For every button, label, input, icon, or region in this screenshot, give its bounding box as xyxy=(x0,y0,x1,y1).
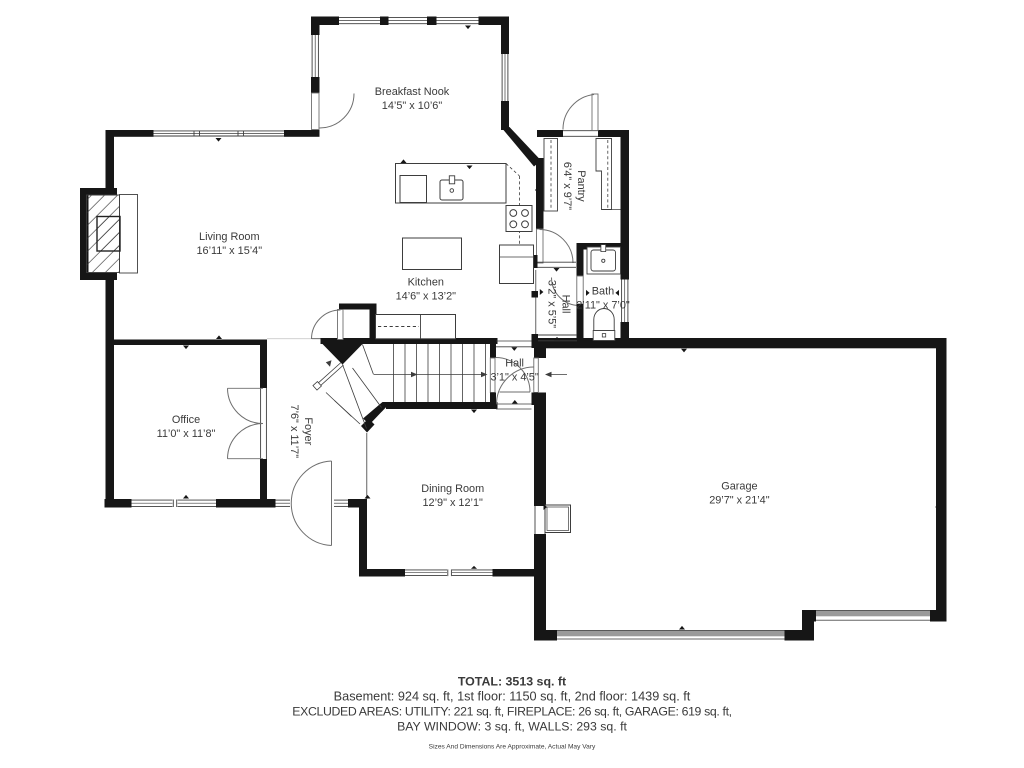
svg-text:11’0" x 11’8": 11’0" x 11’8" xyxy=(157,428,216,440)
svg-text:14’5" x 10’6": 14’5" x 10’6" xyxy=(382,100,443,112)
svg-text:Hall: Hall xyxy=(560,295,572,314)
svg-text:Living Room: Living Room xyxy=(199,231,260,243)
svg-text:Office: Office xyxy=(172,414,200,426)
svg-text:Sizes And Dimensions Are Appro: Sizes And Dimensions Are Approximate, Ac… xyxy=(429,744,596,751)
svg-text:6’4" x 9’7": 6’4" x 9’7" xyxy=(561,162,573,210)
svg-text:Basement: 924 sq. ft, 1st floo: Basement: 924 sq. ft, 1st floor: 1150 sq… xyxy=(334,689,691,703)
svg-text:Dining Room: Dining Room xyxy=(421,483,484,495)
svg-text:Kitchen: Kitchen xyxy=(408,276,444,288)
svg-text:Foyer: Foyer xyxy=(302,417,314,445)
svg-text:16’11" x 15’4": 16’11" x 15’4" xyxy=(196,245,262,257)
svg-text:BAY WINDOW: 3 sq. ft, WALLS: 2: BAY WINDOW: 3 sq. ft, WALLS: 293 sq. ft xyxy=(397,719,627,733)
svg-text:14’6" x 13’2": 14’6" x 13’2" xyxy=(396,290,457,302)
svg-text:TOTAL: 3513 sq. ft: TOTAL: 3513 sq. ft xyxy=(458,675,566,689)
svg-text:Pantry: Pantry xyxy=(575,170,587,202)
svg-text:12’9" x 12’1": 12’9" x 12’1" xyxy=(422,497,483,509)
svg-text:7’6" x 11’7": 7’6" x 11’7" xyxy=(288,405,300,459)
svg-text:Bath: Bath xyxy=(592,286,614,298)
svg-text:EXCLUDED AREAS: UTILITY: 221 s: EXCLUDED AREAS: UTILITY: 221 sq. ft, FIR… xyxy=(292,704,731,718)
svg-text:2’11" x 7’0": 2’11" x 7’0" xyxy=(576,300,630,312)
svg-text:3’1" x 4’5": 3’1" x 4’5" xyxy=(490,372,538,384)
svg-text:Garage: Garage xyxy=(721,480,757,492)
svg-text:Hall: Hall xyxy=(505,358,524,370)
svg-text:Breakfast Nook: Breakfast Nook xyxy=(375,86,450,98)
svg-text:3’2" x 5’5": 3’2" x 5’5" xyxy=(546,280,558,328)
svg-text:29’7" x 21’4": 29’7" x 21’4" xyxy=(709,494,770,506)
